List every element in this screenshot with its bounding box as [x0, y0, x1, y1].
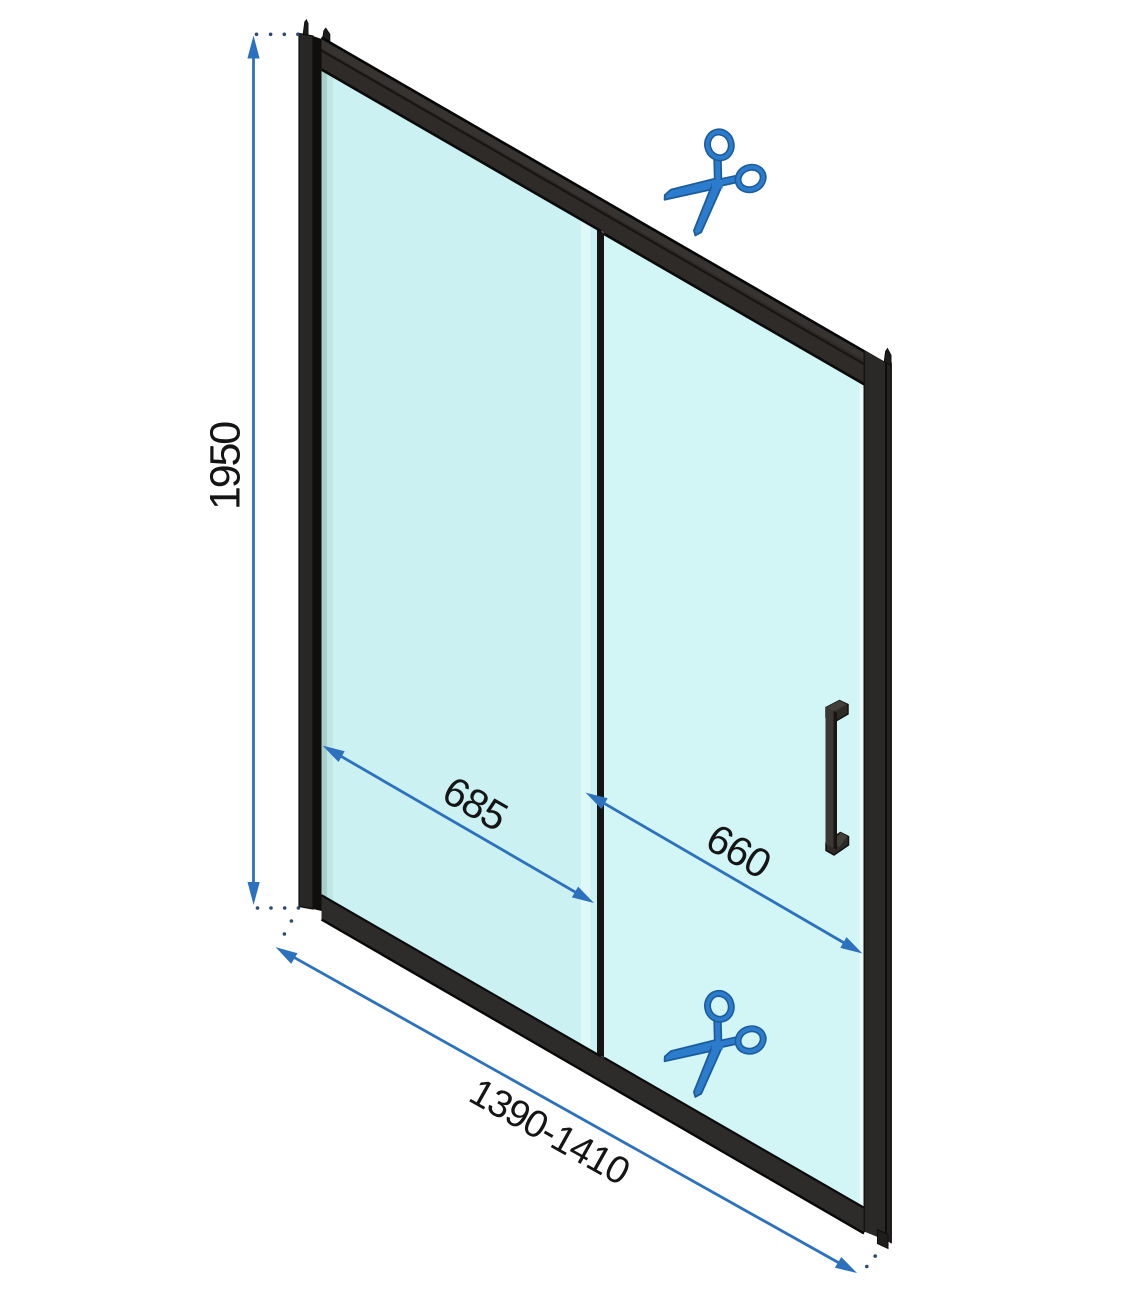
svg-text:1950: 1950 [202, 422, 250, 510]
